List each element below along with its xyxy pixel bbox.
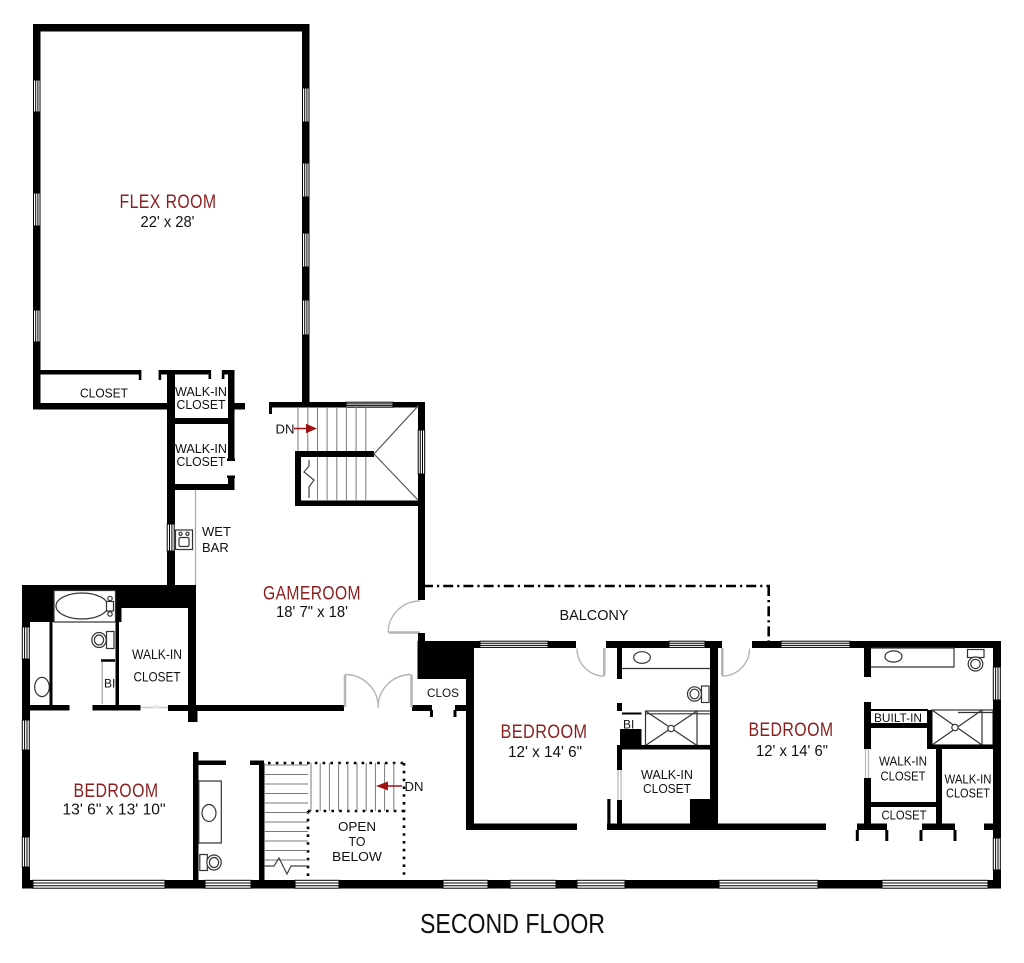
svg-text:BI: BI [104, 677, 115, 691]
svg-text:GAMEROOM: GAMEROOM [263, 584, 361, 605]
svg-text:OPEN: OPEN [338, 819, 376, 834]
svg-text:CLOS: CLOS [427, 686, 459, 700]
svg-text:BAR: BAR [202, 540, 229, 555]
svg-text:BEDROOM: BEDROOM [74, 781, 159, 802]
svg-text:WALK-IN: WALK-IN [132, 646, 182, 662]
svg-text:CLOSET: CLOSET [643, 781, 691, 796]
svg-text:DN: DN [276, 422, 295, 437]
svg-text:SECOND FLOOR: SECOND FLOOR [420, 908, 605, 939]
svg-text:CLOSET: CLOSET [177, 397, 226, 412]
svg-text:WET: WET [202, 524, 231, 539]
svg-text:CLOSET: CLOSET [881, 769, 926, 784]
svg-text:BUILT-IN: BUILT-IN [874, 711, 922, 725]
svg-text:18' 7" x 18': 18' 7" x 18' [276, 604, 348, 621]
svg-text:WALK-IN: WALK-IN [879, 754, 927, 769]
svg-text:CLOSET: CLOSET [882, 808, 927, 823]
svg-text:TO: TO [349, 834, 366, 849]
svg-text:CLOSET: CLOSET [177, 454, 226, 469]
svg-text:BEDROOM: BEDROOM [749, 720, 834, 741]
svg-text:CLOSET: CLOSET [946, 786, 990, 801]
svg-text:FLEX ROOM: FLEX ROOM [120, 192, 217, 213]
svg-text:CLOSET: CLOSET [134, 669, 181, 685]
svg-text:12' x 14' 6": 12' x 14' 6" [756, 743, 828, 760]
svg-text:BALCONY: BALCONY [560, 607, 629, 624]
svg-text:BELOW: BELOW [332, 849, 383, 864]
svg-text:12' x 14' 6": 12' x 14' 6" [508, 744, 582, 761]
svg-text:WALK-IN: WALK-IN [641, 767, 693, 782]
svg-text:DN: DN [405, 779, 424, 794]
svg-text:CLOSET: CLOSET [80, 386, 128, 401]
svg-text:WALK-IN: WALK-IN [945, 772, 992, 787]
svg-text:22' x 28': 22' x 28' [141, 214, 195, 231]
svg-text:13' 6" x 13' 10": 13' 6" x 13' 10" [63, 802, 166, 819]
svg-text:BEDROOM: BEDROOM [501, 722, 588, 743]
